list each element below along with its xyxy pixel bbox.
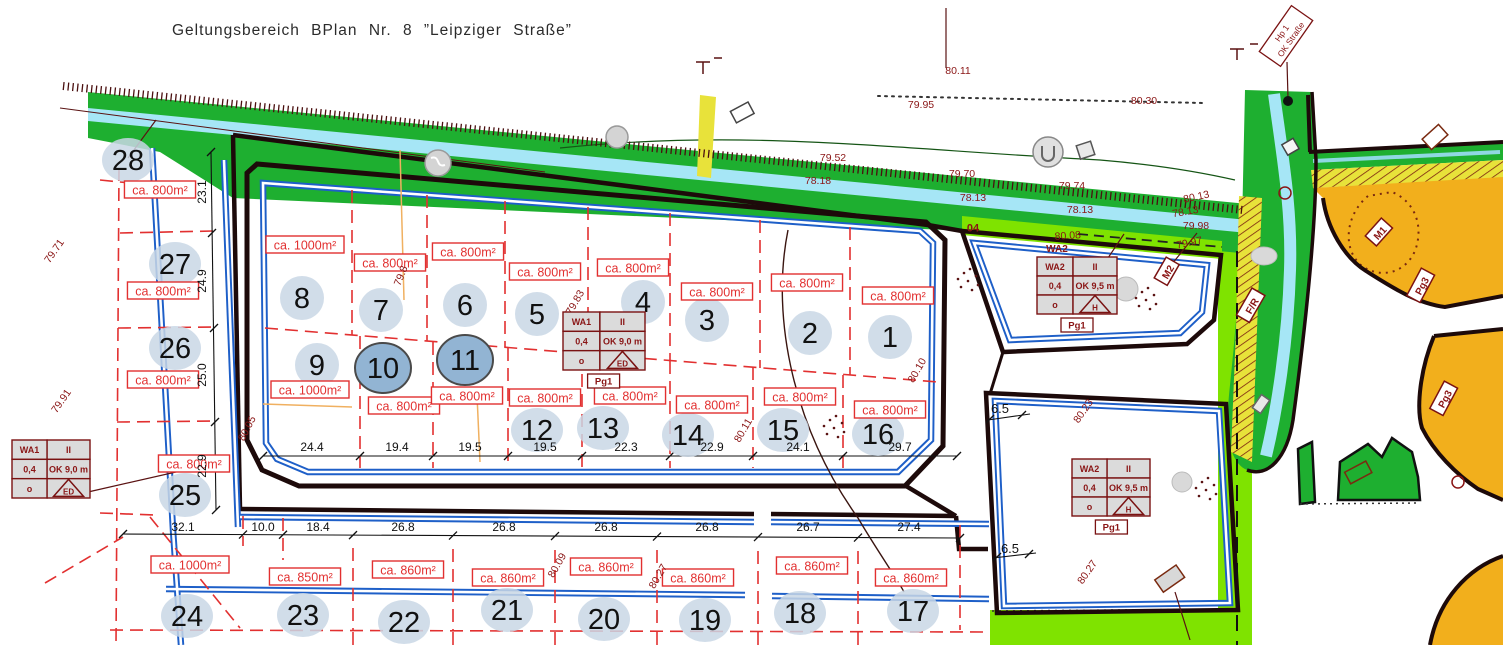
dimension-label: 10.0	[251, 520, 275, 534]
plot-area-label: ca. 800m²	[354, 254, 425, 271]
legend-badge-text: Pg1	[1103, 523, 1121, 534]
plot-number: 2	[802, 318, 818, 350]
zone-tag-04[interactable]: 04	[967, 223, 980, 235]
dimension-label: 22.9	[195, 454, 209, 478]
dimension-label: 19.4	[385, 440, 409, 454]
legend-roof-text: ED	[617, 359, 628, 368]
plot-8[interactable]: 8ca. 1000m²	[266, 236, 344, 320]
area-text: ca. 800m²	[376, 400, 432, 414]
plot-area-label: ca. 800m²	[597, 259, 668, 276]
elevation-label: 79.71	[42, 237, 67, 266]
speckle-dot	[835, 415, 838, 418]
area-text: ca. 800m²	[602, 390, 658, 404]
plot-area-label: ca. 860m²	[472, 569, 543, 586]
speckle-dot	[977, 284, 980, 287]
dimension-label: 19.5	[533, 440, 557, 454]
speckle-dot	[843, 431, 846, 434]
speckle-dot	[823, 425, 826, 428]
legend-cell-text: WA1	[572, 317, 592, 327]
tree-icon	[606, 126, 628, 148]
area-text: ca. 800m²	[517, 392, 573, 406]
area-text: ca. 800m²	[132, 184, 188, 198]
speckle-dot	[1207, 477, 1210, 480]
speckle-dot	[1201, 481, 1204, 484]
speckle-dot	[1155, 303, 1158, 306]
area-text: ca. 800m²	[684, 399, 740, 413]
plot-number: 17	[897, 596, 929, 628]
legend-roof-text: H	[1126, 506, 1132, 515]
plot-number: 8	[294, 283, 310, 315]
t-mark-icon	[1230, 44, 1258, 60]
map-title: Geltungsbereich BPlan Nr. 8 ”Leipziger S…	[172, 22, 572, 40]
area-text: ca. 800m²	[779, 277, 835, 291]
dimension-label: 6.5	[991, 401, 1009, 416]
legend-header: WA2	[1046, 244, 1068, 255]
speckle-dot	[1149, 308, 1152, 311]
elevation-label: 78.18	[805, 175, 831, 187]
plot-area-label: ca. 800m²	[368, 397, 439, 414]
area-text: ca. 800m²	[862, 404, 918, 418]
legend-badge-text: Pg1	[595, 377, 613, 388]
plot-21[interactable]: 21ca. 860m²	[472, 569, 543, 632]
legend-badge-text: Pg1	[1068, 321, 1086, 332]
area-text: ca. 860m²	[480, 572, 536, 586]
plot-area-label: ca. 800m²	[681, 283, 752, 300]
legend-cell-text: WA1	[20, 445, 40, 455]
plot-22[interactable]: 22ca. 860m²	[372, 561, 443, 644]
plot-24[interactable]: 24ca. 1000m²	[151, 556, 229, 638]
utility-manhole-icon	[1033, 137, 1063, 167]
speckle-dot	[971, 289, 974, 292]
plot-area-label: ca. 800m²	[862, 287, 933, 304]
legend-cell-text: 0,4	[575, 337, 588, 347]
utility-box-icon	[1076, 141, 1095, 159]
speckle-dot	[1209, 498, 1212, 501]
plot-area-label: ca. 800m²	[124, 181, 195, 198]
speckle-dot	[960, 286, 963, 289]
benchmark-icon	[1452, 476, 1464, 488]
speckle-dot	[963, 272, 966, 275]
parcel-link	[990, 352, 1003, 394]
plot-area-label: ca. 800m²	[127, 282, 198, 299]
area-text: ca. 1000m²	[279, 384, 342, 398]
survey-marker-box	[1259, 6, 1312, 67]
legend-table-wa1-center: WA1II0,4OK 9,0 moEDPg1	[563, 312, 645, 388]
elevation-label: 78.13	[1067, 204, 1093, 216]
plot-number: 27	[159, 249, 191, 281]
legend-cell-text: II	[66, 445, 71, 455]
area-text: ca. 1000m²	[159, 559, 222, 573]
area-text: ca. 1000m²	[274, 239, 337, 253]
speckle-dot	[1198, 495, 1201, 498]
legend-cell-text: OK 9,0 m	[49, 465, 88, 475]
orange-area-south	[1430, 556, 1503, 645]
area-text: ca. 860m²	[883, 572, 939, 586]
legend-roof-text: H	[1092, 304, 1098, 313]
plot-number: 5	[529, 299, 545, 331]
building-symbol-icon	[1155, 565, 1185, 592]
dimension-label: 24.4	[300, 440, 324, 454]
plot-area-label: ca. 1000m²	[151, 556, 229, 573]
elevation-label: 80.11	[732, 416, 755, 444]
plot-number: 22	[388, 607, 420, 639]
plot-area-label: ca. 800m²	[854, 401, 925, 418]
plot-area-label: ca. 800m²	[509, 263, 580, 280]
plot-6[interactable]: 6ca. 800m²	[432, 243, 503, 327]
plot-area-label: ca. 860m²	[875, 569, 946, 586]
speckle-dot	[1195, 487, 1198, 490]
dimension-label: 18.4	[306, 520, 330, 534]
plot-number: 6	[457, 290, 473, 322]
plot-number: 7	[373, 295, 389, 327]
plot-number: 18	[784, 598, 816, 630]
plot-area-label: ca. 800m²	[771, 274, 842, 291]
dimension-label: 24.1	[786, 440, 810, 454]
tree-icon	[1172, 472, 1192, 492]
speckle-dot	[841, 422, 844, 425]
legend-table-wa2-north: WA2WA2II0,4OK 9,5 moHPg1	[1037, 244, 1117, 332]
legend-cell-text: II	[620, 317, 625, 327]
plot-area-label: ca. 800m²	[676, 396, 747, 413]
plot-10[interactable]: 10ca. 800m²	[355, 343, 440, 414]
t-mark-icon	[696, 58, 722, 74]
speckle-dot	[1147, 287, 1150, 290]
outer-chain-line	[123, 534, 960, 538]
legend-cell-text: o	[579, 356, 585, 366]
speckle-dot	[1205, 489, 1208, 492]
plot-number: 24	[171, 601, 203, 633]
plot-area-label: ca. 800m²	[158, 455, 229, 472]
survey-marker-hp1: Hp 1OK Straße	[1259, 6, 1312, 67]
green-patch-sliver	[1298, 442, 1315, 504]
plot-number: 14	[672, 420, 704, 452]
speckle-dot	[837, 436, 840, 439]
plot-27[interactable]: 27ca. 800m²	[127, 242, 201, 299]
elevation-label: 80.08	[1054, 229, 1081, 243]
speckle-dot	[833, 427, 836, 430]
dimension-label: 23.1	[195, 180, 209, 204]
bright-green-band-south	[990, 610, 1245, 645]
dimension-label: 19.5	[458, 440, 482, 454]
site-plan-canvas: 1ca. 800m²2ca. 800m²3ca. 800m²4ca. 800m²…	[0, 0, 1503, 645]
plot-area-label: ca. 800m²	[127, 371, 198, 388]
speckle-dot	[1135, 297, 1138, 300]
plot-20[interactable]: 20ca. 860m²	[570, 558, 641, 641]
dimension-label: 26.8	[391, 520, 415, 534]
area-text: ca. 800m²	[166, 458, 222, 472]
speckle-dot	[1213, 484, 1216, 487]
area-text: ca. 800m²	[439, 390, 495, 404]
speckle-dot	[829, 419, 832, 422]
dimension-label: 26.7	[796, 520, 820, 534]
dimension-label: 25.0	[195, 363, 209, 387]
plot-number: 10	[367, 353, 399, 385]
dimension-label: 22.9	[700, 440, 724, 454]
speckle-dot	[969, 268, 972, 271]
survey-point-icon	[1283, 96, 1293, 106]
elevation-label: 79.91	[49, 387, 74, 416]
speckle-dot	[1145, 299, 1148, 302]
plot-area-label: ca. 800m²	[431, 387, 502, 404]
dimension-label: 22.3	[614, 440, 638, 454]
plot-26[interactable]: 26ca. 800m²	[127, 326, 201, 388]
area-text: ca. 800m²	[440, 246, 496, 260]
speckle-dot	[1141, 291, 1144, 294]
plot-3[interactable]: 3ca. 800m²	[681, 283, 752, 342]
plot-11[interactable]: 11ca. 800m²	[431, 335, 502, 404]
tree-icon	[1251, 247, 1277, 265]
plot-area-label: ca. 1000m²	[266, 236, 344, 253]
dimension-label: 29.7	[888, 440, 912, 454]
speckle-dot	[967, 280, 970, 283]
area-text: ca. 860m²	[578, 561, 634, 575]
area-text: ca. 860m²	[784, 560, 840, 574]
plot-area-label: ca. 800m²	[594, 387, 665, 404]
legend-cell-text: o	[27, 484, 33, 494]
ne-road-outline	[1308, 95, 1503, 152]
area-text: ca. 800m²	[605, 262, 661, 276]
plot-area-label: ca. 800m²	[432, 243, 503, 260]
legend-cell-text: OK 9,5 m	[1075, 281, 1114, 291]
plot-area-label: ca. 860m²	[570, 558, 641, 575]
legend-cell-text: II	[1126, 464, 1131, 474]
plot-number: 3	[699, 305, 715, 337]
elevation-label: 80.09	[546, 551, 570, 580]
legend-table-wa1-west: WA1II0,4OK 9,0 moED	[12, 440, 90, 498]
plot-number: 23	[287, 600, 319, 632]
plot-area-label: ca. 1000m²	[271, 381, 349, 398]
bplan-map: { "title": "Geltungsbereich BPlan Nr. 8 …	[0, 0, 1503, 645]
elevation-label: 80.23	[1071, 397, 1096, 426]
plot-number: 21	[491, 595, 523, 627]
area-text: ca. 800m²	[689, 286, 745, 300]
area-text: ca. 800m²	[772, 391, 828, 405]
speckle-dot	[826, 433, 829, 436]
plot-number: 11	[450, 345, 480, 377]
plot-number: 20	[588, 604, 620, 636]
speckle-dot	[975, 275, 978, 278]
legend-cell-text: 0,4	[1049, 281, 1062, 291]
speckle-dot	[1138, 305, 1141, 308]
plot-area-label: ca. 860m²	[776, 557, 847, 574]
elevation-label: 79.98	[1183, 220, 1209, 232]
dimension-label: 26.8	[695, 520, 719, 534]
area-text: ca. 860m²	[670, 572, 726, 586]
elevation-label: 79.95	[908, 99, 934, 111]
plot-number: 26	[159, 333, 191, 365]
plot-number: 9	[309, 350, 325, 382]
plot-9[interactable]: 9ca. 1000m²	[271, 343, 349, 398]
plot-number: 25	[169, 480, 201, 512]
legend-cell-text: 0,4	[23, 465, 36, 475]
elevation-label: 79.52	[820, 152, 846, 164]
plot-area-label: ca. 800m²	[764, 388, 835, 405]
plot-number: 28	[112, 145, 144, 177]
plot-2[interactable]: 2ca. 800m²	[771, 274, 842, 355]
plot-1[interactable]: 1ca. 800m²	[862, 287, 933, 359]
zone-tag-text: 04	[967, 223, 980, 235]
plot-17[interactable]: 17ca. 860m²	[875, 569, 946, 633]
legend-cell-text: 0,4	[1083, 483, 1096, 493]
plot-number: 19	[689, 605, 721, 637]
elevation-label: 80.27	[1075, 558, 1100, 587]
dimension-label: 26.8	[492, 520, 516, 534]
area-text: ca. 800m²	[870, 290, 926, 304]
area-text: ca. 800m²	[135, 285, 191, 299]
area-text: ca. 800m²	[517, 266, 573, 280]
orange-area-north	[1313, 177, 1503, 307]
area-text: ca. 800m²	[135, 374, 191, 388]
area-text: ca. 850m²	[277, 571, 333, 585]
dimension-label: 27.4	[897, 520, 921, 534]
speckle-dot	[1153, 294, 1156, 297]
speckle-dot	[1215, 493, 1218, 496]
legend-cell-text: OK 9,0 m	[603, 337, 642, 347]
legend-cell-text: o	[1087, 502, 1093, 512]
elevation-label: 79.70	[949, 168, 975, 180]
speckle-dot	[957, 278, 960, 281]
building-symbol-icon	[730, 102, 754, 123]
elevation-label: 80.30	[1131, 95, 1157, 107]
plot-area-label: ca. 860m²	[662, 569, 733, 586]
legend-cell-text: WA2	[1045, 262, 1065, 272]
dimension-label: 26.8	[594, 520, 618, 534]
legend-cell-text: WA2	[1080, 464, 1100, 474]
patch-dotted-line	[1300, 503, 1420, 504]
legend-cell-text: o	[1052, 300, 1058, 310]
legend-cell-text: II	[1092, 262, 1097, 272]
dimension-label: 6.5	[1001, 541, 1019, 556]
plot-area-label: ca. 850m²	[269, 568, 340, 585]
dimension-label: 32.1	[171, 520, 195, 534]
elevation-label: 78.13	[960, 192, 986, 204]
right-verge-layer	[990, 90, 1316, 645]
plot-area-label: ca. 800m²	[509, 389, 580, 406]
legend-table-wa2-south: WA2II0,4OK 9,5 moHPg1	[1072, 459, 1150, 534]
elevation-label: 79.74	[1059, 180, 1085, 192]
legend-cell-text: OK 9,5 m	[1109, 483, 1148, 493]
plot-23[interactable]: 23ca. 850m²	[269, 568, 340, 637]
plot-number: 1	[882, 322, 898, 354]
dimension-label: 24.9	[195, 269, 209, 293]
area-text: ca. 860m²	[380, 564, 436, 578]
plot-area-label: ca. 860m²	[372, 561, 443, 578]
legend-roof-text: ED	[63, 487, 74, 496]
elevation-label: 80.11	[945, 65, 971, 77]
plot-7[interactable]: 7ca. 800m²	[354, 254, 425, 332]
